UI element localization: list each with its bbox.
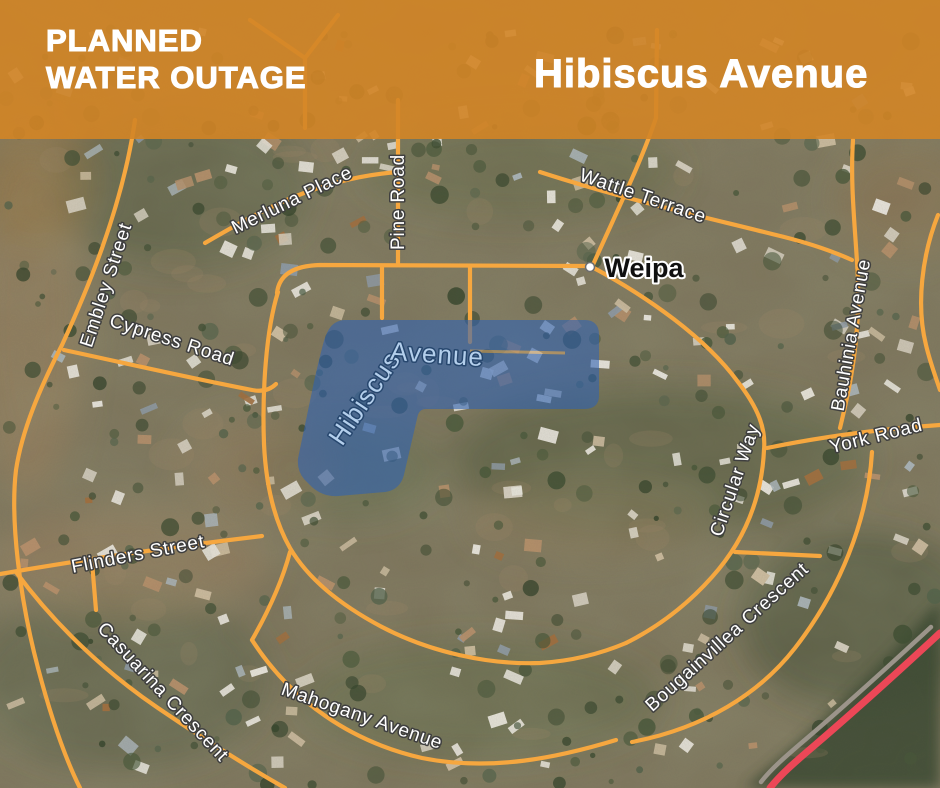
banner-location: Hibiscus Avenue xyxy=(534,52,868,97)
banner-heading-line2: WATER OUTAGE xyxy=(46,59,307,96)
banner-heading-line1: PLANNED xyxy=(46,22,307,59)
outage-banner: PLANNED WATER OUTAGE Hibiscus Avenue xyxy=(0,0,940,139)
flyer: Hibiscus Avenue Merluna Place Pine Road … xyxy=(0,0,940,788)
town-marker-dot xyxy=(586,263,595,272)
street-label-pine-road: Pine Road xyxy=(388,154,409,250)
banner-heading: PLANNED WATER OUTAGE xyxy=(46,22,307,96)
town-label-weipa: Weipa xyxy=(604,253,684,283)
